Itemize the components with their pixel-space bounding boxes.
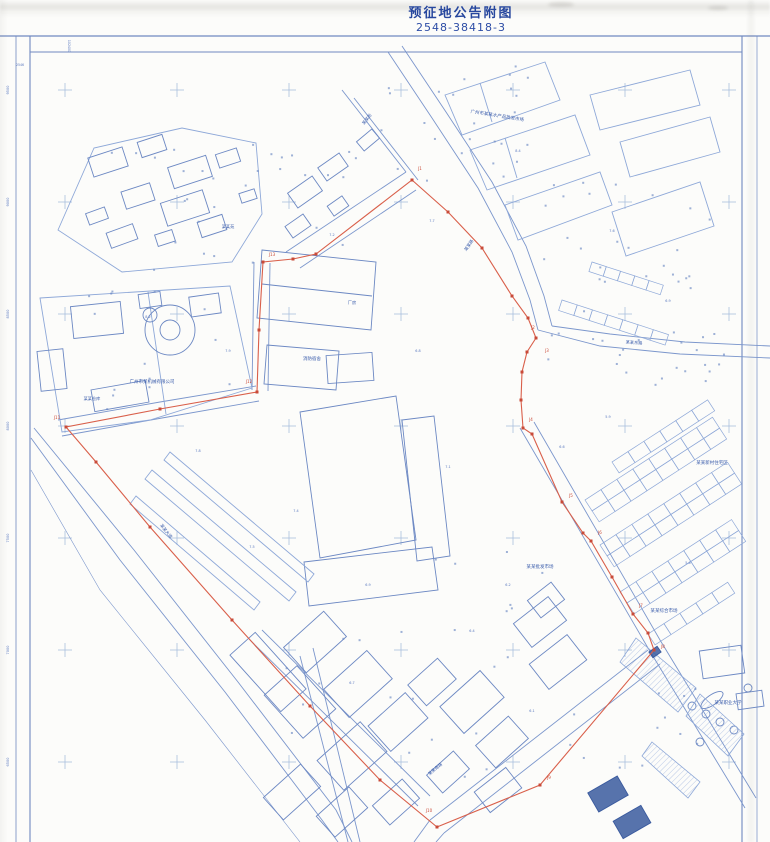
boundary-point-label: J7 bbox=[638, 603, 643, 608]
paper-speck bbox=[708, 6, 728, 10]
boundary-point-label: J8 bbox=[660, 644, 665, 649]
boundary-point-label: J1 bbox=[417, 166, 422, 171]
paper-speck bbox=[548, 2, 574, 7]
map-label: 某某苑 bbox=[222, 223, 235, 230]
map-label: 7.9 bbox=[225, 349, 230, 353]
map-label: 某某职业大学 bbox=[715, 699, 742, 706]
map-frame bbox=[0, 36, 770, 842]
map-label: 7.2 bbox=[329, 233, 334, 237]
map-label: 8500 bbox=[6, 310, 10, 319]
map-label: 广州市某机械有限公司 bbox=[130, 378, 175, 385]
map-label: 6.4 bbox=[469, 629, 474, 633]
boundary-point-label: J6 bbox=[597, 530, 602, 535]
map-header: 预征地公告附图 2548-38418-3 bbox=[408, 6, 513, 34]
parcel-grid bbox=[585, 417, 727, 522]
map-label: 102400 bbox=[67, 40, 71, 52]
map-label: 5.9 bbox=[605, 415, 610, 419]
boundary-point-label: J2 bbox=[530, 325, 535, 330]
map-label: 7500 bbox=[6, 534, 10, 543]
map-label: 6.1 bbox=[529, 709, 534, 713]
boundary-point-label: J9 bbox=[546, 775, 551, 780]
map-label: 9000 bbox=[6, 198, 10, 207]
map-label: 8000 bbox=[6, 422, 10, 431]
map-label: 某某批发市场 bbox=[527, 563, 554, 570]
map-label: 某某街 bbox=[360, 112, 373, 126]
map-canvas: J1J2J3J4J5J6J7J8J9J10J11J12J13广州市某某水产品批发… bbox=[0, 0, 770, 842]
boundary-point-label: J10 bbox=[425, 808, 433, 813]
map-label: 2546 bbox=[16, 63, 24, 67]
map-sheet: 预征地公告附图 2548-38418-3 J1J2J3J4J5J6J7J8J9J… bbox=[0, 0, 770, 842]
map-label: 6500 bbox=[6, 758, 10, 767]
map-label: 8.2 bbox=[145, 315, 150, 319]
map-label: 消防宿舍 bbox=[303, 355, 321, 362]
map-title: 预征地公告附图 bbox=[408, 6, 513, 21]
map-label: 6.9 bbox=[365, 583, 370, 587]
map-label: 7000 bbox=[6, 646, 10, 655]
map-label: 7.1 bbox=[445, 465, 450, 469]
map-label: 某某仓库 bbox=[84, 395, 101, 402]
parcel-grid bbox=[600, 462, 742, 567]
map-label: 8.4 bbox=[515, 149, 520, 153]
map-label: 厂房 bbox=[348, 299, 356, 306]
boundary-point-label: J5 bbox=[568, 493, 573, 498]
map-sheet-number: 2548-38418-3 bbox=[408, 21, 513, 34]
map-label: 某某新村住宅区 bbox=[696, 459, 728, 466]
map-label: 7.4 bbox=[293, 509, 298, 513]
boundary-point-label: J12 bbox=[245, 379, 253, 384]
map-label: 某某综合市场 bbox=[651, 607, 678, 614]
map-linework bbox=[31, 46, 770, 842]
map-label: 5.6 bbox=[685, 561, 690, 565]
map-label: 9500 bbox=[6, 86, 10, 95]
red-boundary: J1J2J3J4J5J6J7J8J9J10J11J12J13 bbox=[53, 166, 665, 829]
parcel-grid bbox=[620, 520, 746, 614]
boundary-point-label: J3 bbox=[544, 348, 549, 353]
map-label: 6.8 bbox=[415, 349, 420, 353]
map-label: 某某东路 bbox=[625, 338, 643, 346]
map-dots bbox=[88, 65, 725, 777]
map-label: 6.2 bbox=[505, 583, 510, 587]
map-label: 7.8 bbox=[195, 449, 200, 453]
map-label: 7.5 bbox=[249, 545, 254, 549]
map-label: 6.6 bbox=[559, 445, 564, 449]
map-label: 某某南路 bbox=[426, 760, 444, 777]
boundary-point-label: J4 bbox=[528, 417, 533, 422]
map-label: 7.6 bbox=[609, 229, 614, 233]
boundary-point-label: J11 bbox=[53, 415, 61, 420]
boundary-point-label: J13 bbox=[268, 252, 276, 257]
map-label: 6.9 bbox=[665, 299, 670, 303]
map-label: 6.7 bbox=[349, 681, 354, 685]
map-label: 7.7 bbox=[429, 219, 434, 223]
